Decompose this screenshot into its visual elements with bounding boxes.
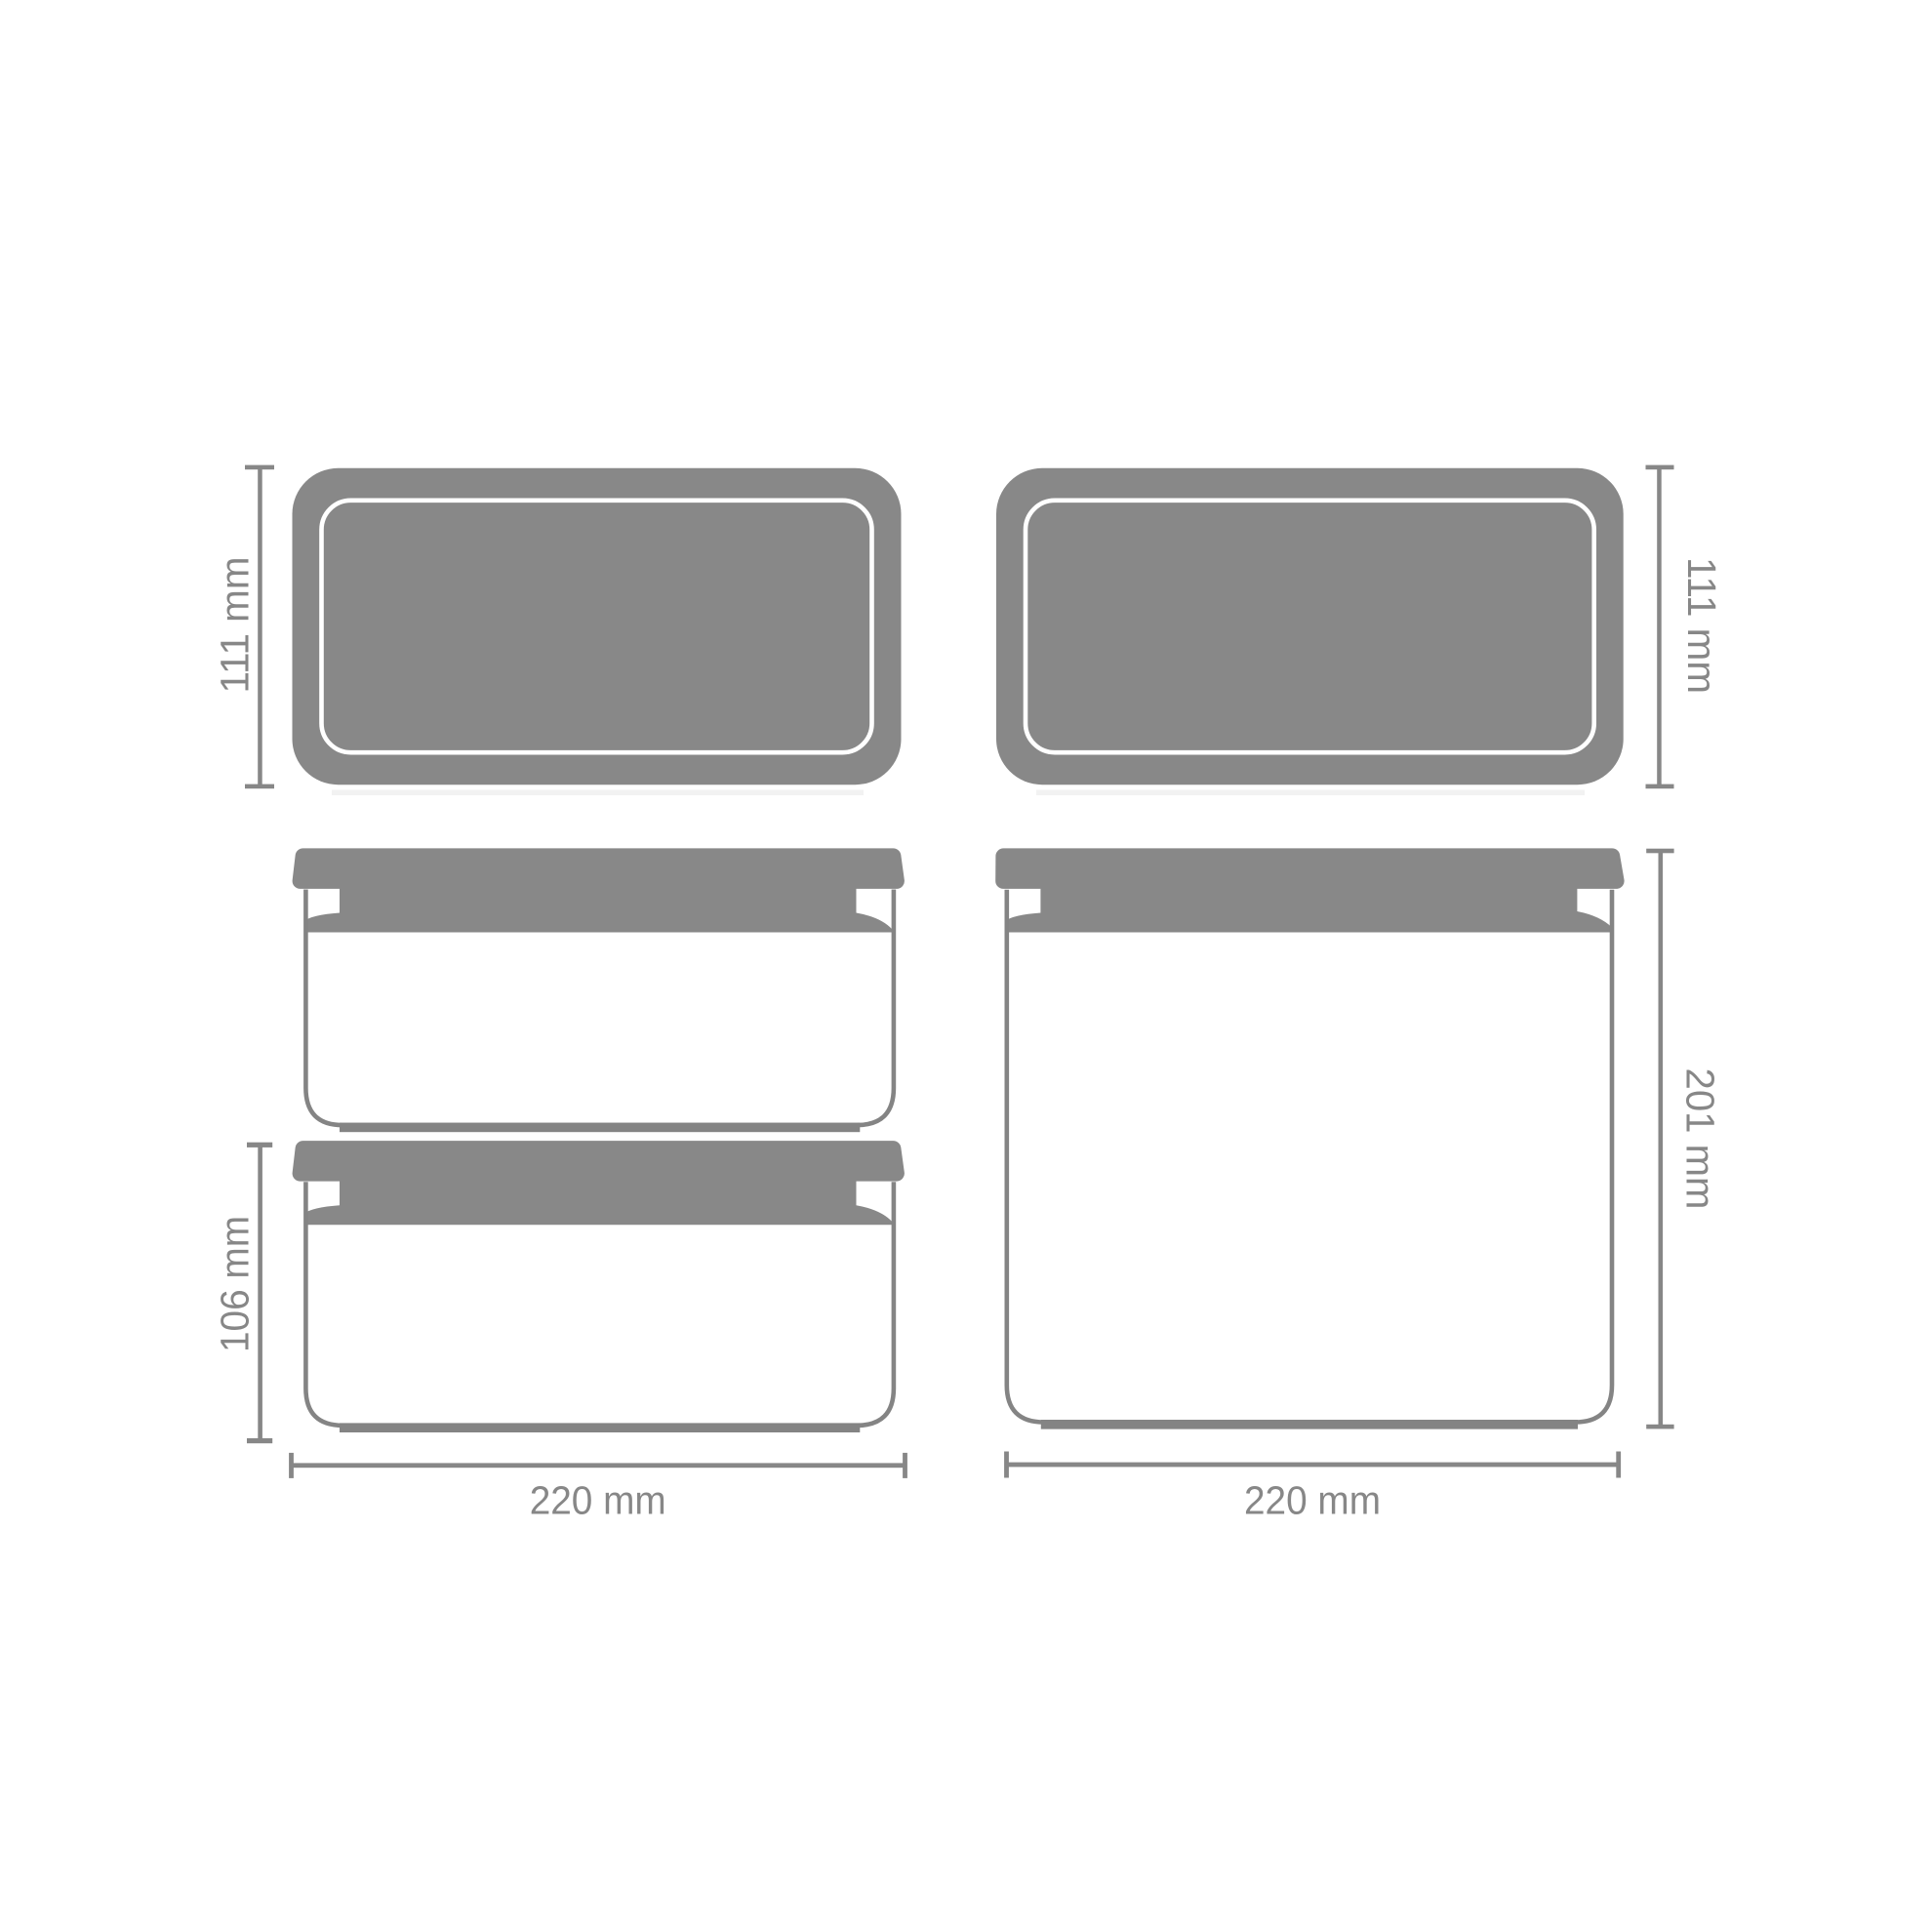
svg-text:106 mm: 106 mm bbox=[213, 1216, 258, 1352]
svg-text:220 mm: 220 mm bbox=[1244, 1477, 1381, 1522]
svg-text:111 mm: 111 mm bbox=[213, 557, 258, 694]
svg-text:111 mm: 111 mm bbox=[1679, 557, 1724, 694]
svg-text:201 mm: 201 mm bbox=[1677, 1068, 1722, 1210]
svg-text:220 mm: 220 mm bbox=[530, 1477, 666, 1522]
